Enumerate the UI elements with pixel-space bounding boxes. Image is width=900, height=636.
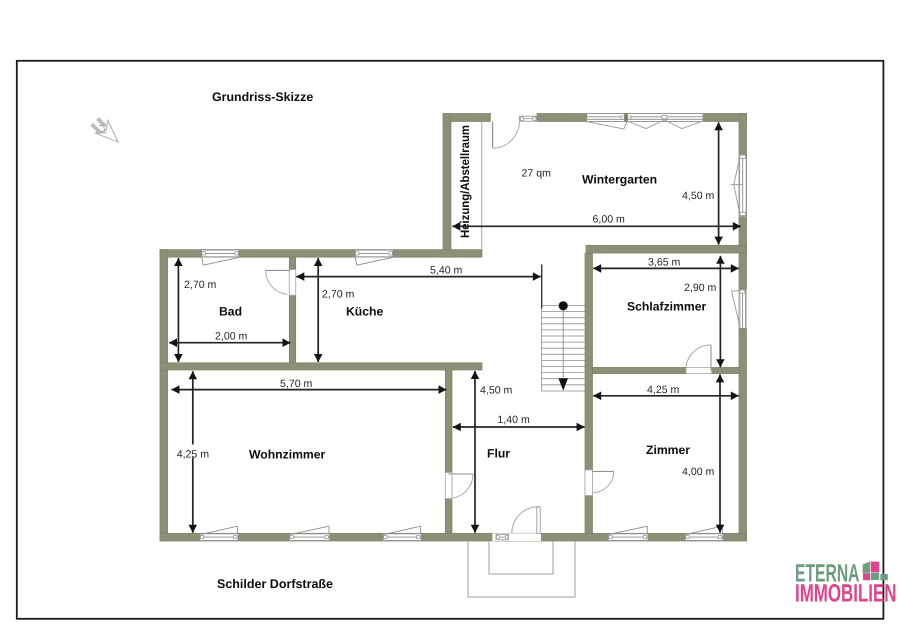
- svg-text:Schilder Dorfstraße: Schilder Dorfstraße: [217, 577, 333, 591]
- svg-text:2,70 m: 2,70 m: [184, 279, 217, 291]
- svg-text:4,50 m: 4,50 m: [480, 385, 513, 397]
- svg-text:2,00 m: 2,00 m: [215, 331, 248, 343]
- svg-text:27 qm: 27 qm: [522, 168, 552, 180]
- svg-text:4,25 m: 4,25 m: [647, 384, 680, 396]
- svg-text:4,00 m: 4,00 m: [682, 466, 715, 478]
- svg-text:Heizung/Abstellraum: Heizung/Abstellraum: [458, 125, 472, 238]
- svg-text:Flur: Flur: [487, 447, 510, 461]
- svg-text:Grundriss-Skizze: Grundriss-Skizze: [212, 90, 313, 104]
- svg-text:Schlafzimmer: Schlafzimmer: [627, 300, 707, 314]
- svg-text:4,50 m: 4,50 m: [682, 190, 715, 202]
- svg-text:Küche: Küche: [346, 305, 383, 319]
- svg-text:2,90 m: 2,90 m: [684, 282, 717, 294]
- svg-text:2,70 m: 2,70 m: [322, 289, 355, 301]
- svg-text:1,40 m: 1,40 m: [497, 414, 530, 426]
- svg-text:3,65 m: 3,65 m: [648, 257, 681, 269]
- svg-text:5,70 m: 5,70 m: [280, 378, 313, 390]
- svg-text:6,00 m: 6,00 m: [593, 213, 626, 225]
- svg-text:5,40 m: 5,40 m: [430, 265, 463, 277]
- svg-text:IMMOBILIEN: IMMOBILIEN: [795, 580, 897, 608]
- svg-text:Wintergarten: Wintergarten: [582, 172, 657, 186]
- svg-text:4,25 m: 4,25 m: [177, 448, 210, 460]
- svg-text:Wohnzimmer: Wohnzimmer: [249, 448, 326, 462]
- svg-text:Zimmer: Zimmer: [646, 443, 690, 457]
- svg-text:Bad: Bad: [219, 305, 242, 319]
